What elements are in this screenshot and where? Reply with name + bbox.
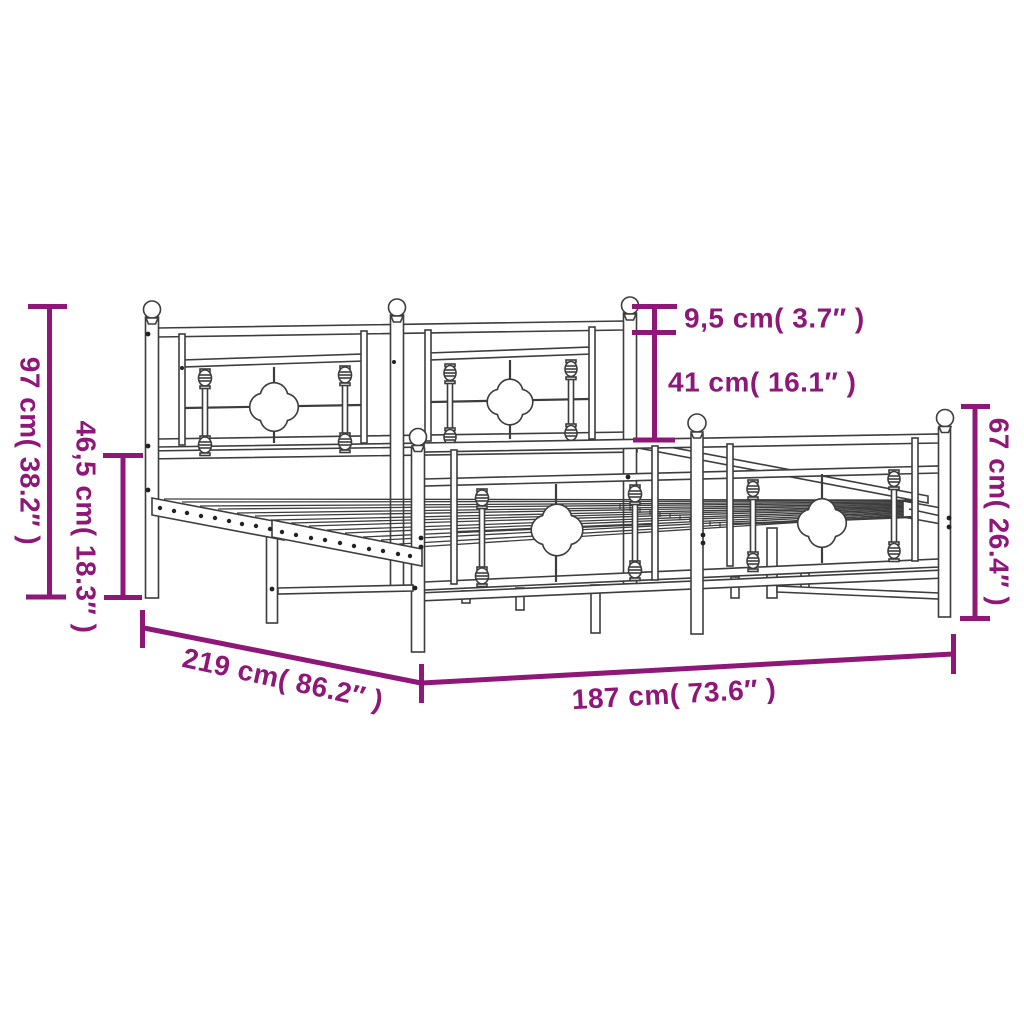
- headboard-panel2-quatrefoil-icon: [488, 380, 532, 424]
- finial-ball-icon: [688, 414, 706, 432]
- label-footboard-height: 67 cm( 26.4″ ): [984, 418, 1015, 607]
- finial-ball-icon: [389, 299, 406, 316]
- headboard-panel2-frame-left: [425, 330, 431, 441]
- far-stretcher: [777, 586, 939, 599]
- headboard-second-rail-left: [182, 354, 364, 367]
- label-base-height: 46,5 cm( 18.3″ ): [71, 421, 102, 634]
- footboard-panel2-frame-left: [727, 444, 733, 566]
- footboard-panel1-frame-right: [652, 446, 658, 580]
- label-total-width: 187 cm( 73.6″ ): [571, 673, 777, 715]
- bed-frame-drawing: [144, 297, 954, 652]
- headboard-panel1-quatrefoil-icon: [251, 384, 298, 431]
- headboard-second-rail-right: [428, 347, 592, 360]
- finial-ball-icon: [937, 410, 954, 427]
- near-side-rail: [152, 498, 422, 623]
- footboard-panel1-quatrefoil-icon: [532, 505, 582, 555]
- headboard-panel1-frame-right: [361, 331, 367, 443]
- finial-ball-icon: [410, 429, 427, 446]
- side-rail-piece-1: [152, 498, 284, 540]
- dimension-base-height: [103, 456, 143, 598]
- footboard-panel1-frame-left: [451, 450, 457, 584]
- far-middle-leg: [767, 528, 777, 598]
- headboard-panel2-frame-right: [589, 327, 595, 439]
- headboard-panel1-frame-left: [179, 334, 185, 445]
- dimension-finial-gap: [632, 307, 677, 333]
- near-stretcher: [278, 585, 413, 594]
- label-finial-gap: 9,5 cm( 3.7″ ): [684, 303, 865, 334]
- footboard-panel2-frame-right: [912, 438, 918, 561]
- bed-frame-dimension-diagram: 97 cm( 38.2″ ) 46,5 cm( 18.3″ ) 9,5 cm( …: [0, 0, 1024, 1024]
- finial-ball-icon: [144, 301, 161, 318]
- diagram-svg: 97 cm( 38.2″ ) 46,5 cm( 18.3″ ) 9,5 cm( …: [0, 0, 1024, 1024]
- label-headboard-height: 97 cm( 38.2″ ): [15, 357, 46, 546]
- label-panel-height: 41 cm( 16.1″ ): [668, 367, 857, 398]
- footboard: [410, 410, 954, 653]
